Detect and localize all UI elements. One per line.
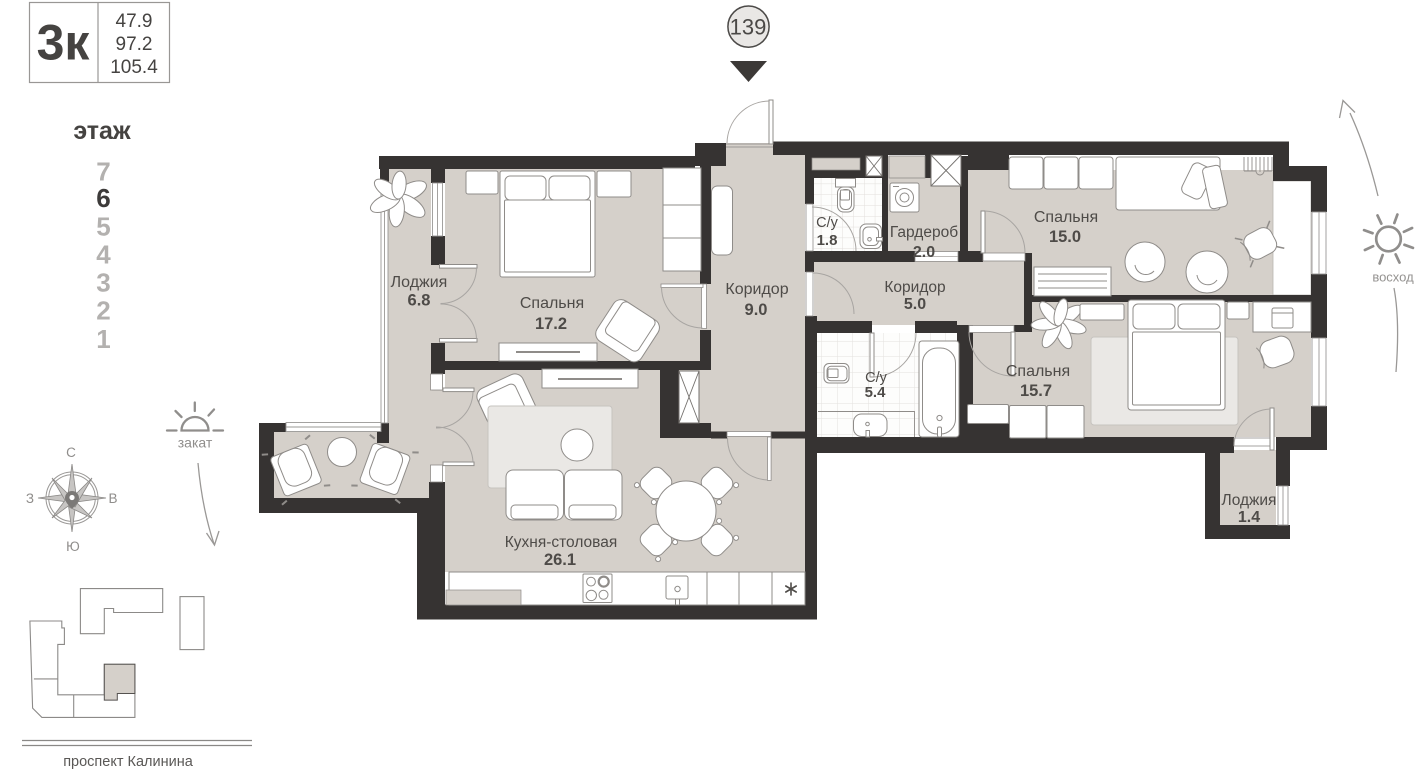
svg-text:105.4: 105.4 [110,57,158,78]
svg-text:В: В [108,491,117,506]
svg-text:1.8: 1.8 [817,232,838,249]
svg-text:5: 5 [96,212,110,242]
svg-text:9.0: 9.0 [745,301,768,319]
svg-text:2.0: 2.0 [913,244,935,261]
svg-text:4: 4 [96,240,111,270]
svg-text:1.4: 1.4 [1238,509,1260,526]
svg-text:Спальня: Спальня [1006,363,1070,380]
svg-text:Лоджия: Лоджия [1222,492,1277,509]
svg-text:15.7: 15.7 [1020,382,1052,400]
svg-text:Ю: Ю [66,539,80,554]
svg-text:Спальня: Спальня [1034,209,1098,226]
svg-text:7: 7 [96,157,110,187]
svg-text:3: 3 [96,268,110,298]
svg-text:26.1: 26.1 [544,551,576,569]
svg-text:1: 1 [96,324,110,354]
svg-text:17.2: 17.2 [535,315,567,333]
svg-text:Гардероб: Гардероб [890,224,958,241]
svg-text:6.8: 6.8 [408,292,431,310]
svg-text:проспект Калинина: проспект Калинина [63,754,194,770]
svg-text:139: 139 [730,15,767,40]
svg-text:Спальня: Спальня [520,295,584,312]
svg-text:Кухня-столовая: Кухня-столовая [505,534,618,551]
svg-text:З: З [26,491,34,506]
svg-text:закат: закат [178,435,213,451]
svg-text:6: 6 [96,183,110,213]
svg-text:Лоджия: Лоджия [391,274,448,291]
svg-text:47.9: 47.9 [116,11,153,32]
svg-text:восход: восход [1372,270,1414,285]
svg-text:С/у: С/у [816,215,839,231]
svg-text:5.4: 5.4 [865,384,887,401]
svg-text:Коридор: Коридор [884,279,945,296]
svg-text:этаж: этаж [73,117,131,145]
svg-text:5.0: 5.0 [904,296,926,313]
svg-text:С: С [66,445,76,460]
svg-text:97.2: 97.2 [116,34,153,55]
svg-text:2: 2 [96,296,110,326]
svg-text:Коридор: Коридор [725,281,788,298]
svg-text:15.0: 15.0 [1049,228,1081,246]
svg-text:3к: 3к [37,15,91,71]
